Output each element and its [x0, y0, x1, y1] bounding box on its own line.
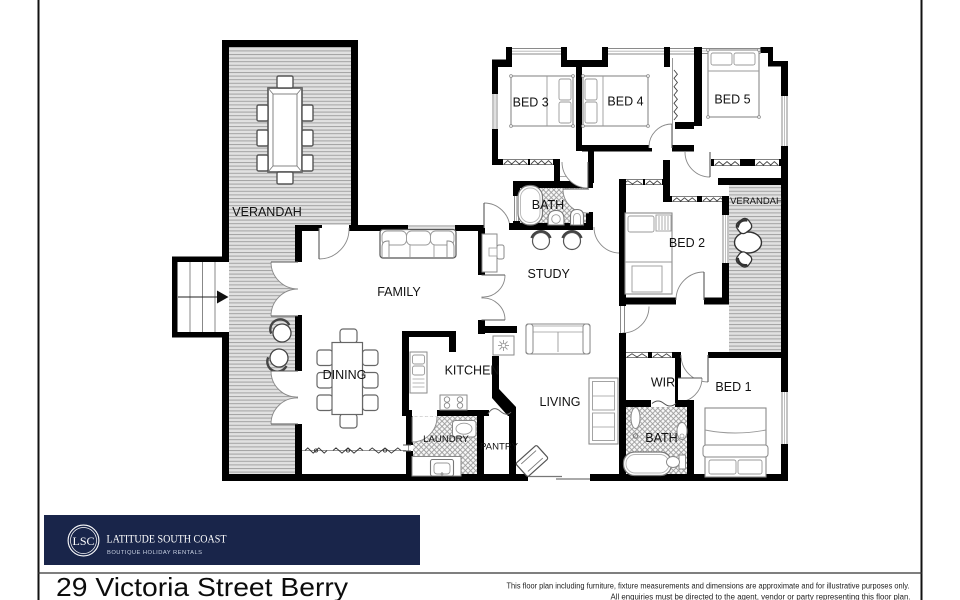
svg-text:BED 3: BED 3 — [513, 96, 549, 110]
svg-text:LATITUDE SOUTH COAST: LATITUDE SOUTH COAST — [107, 534, 227, 546]
svg-text:This floor plan including furn: This floor plan including furniture, fix… — [507, 582, 910, 591]
svg-text:VERANDAH: VERANDAH — [232, 205, 301, 219]
svg-text:LIVING: LIVING — [540, 395, 581, 409]
svg-text:WIR: WIR — [651, 376, 675, 390]
svg-text:LAUNDRY: LAUNDRY — [423, 434, 469, 445]
svg-text:PANTRY: PANTRY — [480, 442, 519, 453]
svg-text:KITCHEN: KITCHEN — [445, 364, 500, 378]
svg-text:VERANDAH: VERANDAH — [730, 196, 783, 207]
svg-text:BATH: BATH — [645, 431, 677, 445]
svg-text:LSC: LSC — [72, 534, 94, 548]
svg-text:BED 4: BED 4 — [607, 95, 643, 109]
svg-text:29 Victoria Street Berry: 29 Victoria Street Berry — [56, 572, 348, 600]
svg-text:BED 2: BED 2 — [669, 236, 705, 250]
svg-text:All enquiries must be directed: All enquiries must be directed to the ag… — [611, 593, 911, 600]
svg-text:DINING: DINING — [323, 368, 367, 382]
svg-text:BOUTIQUE HOLIDAY RENTALS: BOUTIQUE HOLIDAY RENTALS — [107, 550, 202, 556]
svg-text:BED 5: BED 5 — [714, 93, 750, 107]
svg-text:FAMILY: FAMILY — [377, 285, 421, 299]
svg-text:BATH: BATH — [532, 198, 564, 212]
svg-text:BED 1: BED 1 — [715, 380, 751, 394]
svg-text:STUDY: STUDY — [528, 267, 571, 281]
